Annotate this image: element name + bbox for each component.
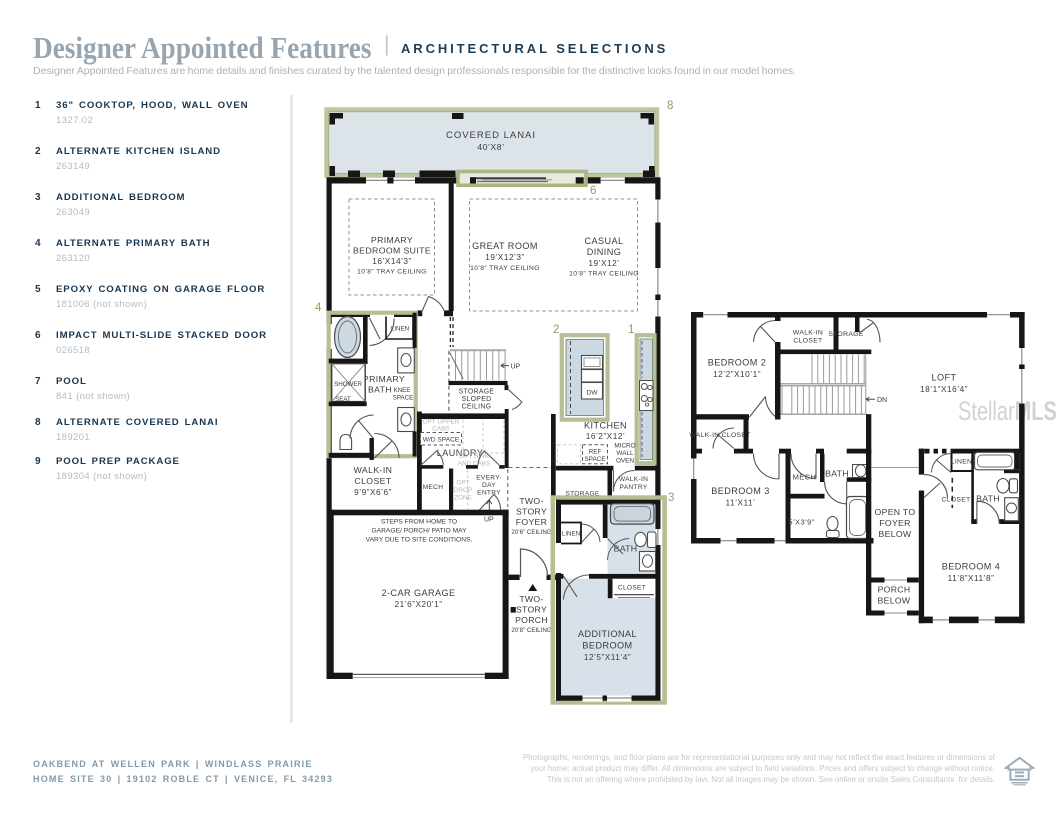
svg-text:GREAT ROOM: GREAT ROOM [472, 241, 538, 251]
svg-text:16’2”X12’: 16’2”X12’ [586, 431, 626, 441]
svg-text:DW: DW [587, 390, 599, 397]
svg-text:WALL: WALL [616, 450, 634, 457]
svg-text:19’X12’: 19’X12’ [588, 258, 619, 268]
svg-text:BELOW: BELOW [878, 596, 911, 606]
svg-text:LINEN: LINEN [391, 326, 409, 333]
svg-text:3: 3 [668, 492, 674, 504]
svg-text:COVERED LANAI: COVERED LANAI [446, 130, 536, 141]
svg-text:DAY: DAY [482, 482, 496, 489]
svg-text:5’X3’9”: 5’X3’9” [788, 518, 814, 527]
svg-text:12’2”X10’1”: 12’2”X10’1” [713, 369, 761, 379]
svg-text:PANTRY: PANTRY [620, 484, 648, 491]
svg-text:4: 4 [315, 302, 322, 314]
svg-text:GARAGE/ PORCH/ PATIO MAY: GARAGE/ PORCH/ PATIO MAY [371, 528, 467, 535]
svg-text:SPACE: SPACE [393, 395, 414, 402]
svg-text:10’8” TRAY CEILING: 10’8” TRAY CEILING [470, 265, 540, 272]
svg-text:ADDITIONAL: ADDITIONAL [578, 629, 637, 639]
svg-text:STORY: STORY [516, 605, 547, 615]
svg-text:BELOW: BELOW [879, 529, 912, 539]
svg-text:20’6” CEILING: 20’6” CEILING [511, 529, 551, 536]
svg-text:WALK-IN: WALK-IN [793, 330, 823, 337]
svg-text:11’X11’: 11’X11’ [726, 498, 756, 508]
svg-text:FOYER: FOYER [879, 518, 910, 528]
svg-text:CLOSET: CLOSET [618, 585, 646, 592]
svg-text:STORY: STORY [516, 507, 547, 517]
svg-text:11’8”X11’8”: 11’8”X11’8” [948, 573, 995, 583]
svg-text:MECH: MECH [793, 473, 817, 482]
svg-text:KITCHEN: KITCHEN [584, 421, 627, 431]
svg-text:DROP: DROP [454, 487, 472, 494]
svg-text:DINING: DINING [587, 247, 622, 257]
svg-text:SHOWER: SHOWER [334, 381, 362, 388]
svg-text:BATH: BATH [368, 385, 392, 395]
svg-text:2-CAR GARAGE: 2-CAR GARAGE [381, 588, 455, 598]
svg-text:BEDROOM 2: BEDROOM 2 [708, 358, 767, 368]
svg-text:PORCH: PORCH [878, 585, 911, 595]
svg-text:SLOPED: SLOPED [462, 396, 492, 403]
svg-text:TWO-: TWO- [519, 496, 543, 506]
svg-text:19’X12’3”: 19’X12’3” [485, 252, 525, 262]
svg-text:OPT SINK: OPT SINK [459, 453, 489, 460]
svg-text:OPT UPPER: OPT UPPER [423, 419, 460, 426]
svg-text:CLOSET: CLOSET [942, 497, 971, 504]
svg-text:20’8” CEILING: 20’8” CEILING [511, 627, 551, 634]
svg-text:WALK-IN: WALK-IN [619, 476, 648, 483]
svg-text:OPEN TO: OPEN TO [875, 507, 916, 517]
svg-text:12’5”X11’4”: 12’5”X11’4” [584, 652, 631, 662]
svg-text:CABS: CABS [432, 426, 449, 433]
svg-text:BEDROOM SUITE: BEDROOM SUITE [353, 246, 431, 256]
svg-text:BATH: BATH [825, 469, 849, 479]
svg-text:MECH: MECH [423, 484, 444, 491]
svg-text:10’8” TRAY CEILING: 10’8” TRAY CEILING [569, 271, 639, 278]
svg-text:BEDROOM: BEDROOM [582, 641, 632, 651]
svg-text:ZONE: ZONE [454, 495, 472, 502]
svg-text:DN: DN [877, 397, 887, 404]
svg-text:KNEE: KNEE [394, 387, 411, 394]
svg-text:PRIMARY: PRIMARY [371, 235, 413, 245]
svg-text:40’X8’: 40’X8’ [477, 142, 504, 152]
svg-text:16’X14’3”: 16’X14’3” [372, 256, 412, 266]
svg-text:UP: UP [511, 364, 521, 371]
svg-text:STORAGE: STORAGE [828, 331, 863, 338]
svg-text:ENTRY: ENTRY [477, 490, 501, 497]
svg-text:PORCH: PORCH [515, 615, 548, 625]
svg-text:CEILING: CEILING [462, 404, 492, 411]
svg-text:CLOSET: CLOSET [794, 338, 823, 345]
svg-text:8: 8 [667, 100, 673, 112]
svg-text:LINEN: LINEN [951, 459, 973, 466]
svg-text:CASUAL: CASUAL [584, 236, 623, 246]
svg-text:LOFT: LOFT [931, 373, 956, 383]
svg-text:CLOSET: CLOSET [354, 476, 391, 486]
svg-text:BEDROOM 4: BEDROOM 4 [942, 562, 1001, 572]
svg-text:OVEN: OVEN [616, 458, 634, 465]
svg-text:FOYER: FOYER [516, 517, 547, 527]
svg-text:1: 1 [628, 324, 634, 336]
svg-text:TWO-: TWO- [519, 594, 543, 604]
svg-text:SPACE: SPACE [584, 456, 605, 463]
svg-text:WALK-IN: WALK-IN [354, 465, 393, 475]
svg-text:BEDROOM 3: BEDROOM 3 [711, 486, 770, 496]
svg-text:LINEN: LINEN [562, 531, 580, 538]
svg-text:6: 6 [590, 185, 596, 197]
svg-text:W/D SPACE: W/D SPACE [423, 437, 460, 444]
svg-text:STEPS FROM HOME TO: STEPS FROM HOME TO [381, 519, 457, 526]
svg-text:EVERY-: EVERY- [476, 475, 502, 482]
svg-text:REF: REF [589, 449, 602, 456]
svg-text:UP: UP [484, 517, 494, 524]
svg-text:2: 2 [553, 324, 559, 336]
svg-text:VARY DUE TO SITE CONDITIONS.: VARY DUE TO SITE CONDITIONS. [366, 537, 473, 544]
svg-text:STORAGE: STORAGE [459, 389, 495, 396]
svg-text:MICRO: MICRO [614, 443, 635, 450]
svg-text:PRIMARY: PRIMARY [363, 374, 405, 384]
svg-text:BATH: BATH [976, 494, 1000, 504]
svg-text:9’9”X6’6”: 9’9”X6’6” [354, 487, 392, 497]
svg-text:10’8” TRAY CEILING: 10’8” TRAY CEILING [357, 269, 427, 276]
svg-text:18’1”X16’4”: 18’1”X16’4” [920, 384, 968, 394]
svg-text:21’6”X20’1”: 21’6”X20’1” [395, 599, 443, 609]
